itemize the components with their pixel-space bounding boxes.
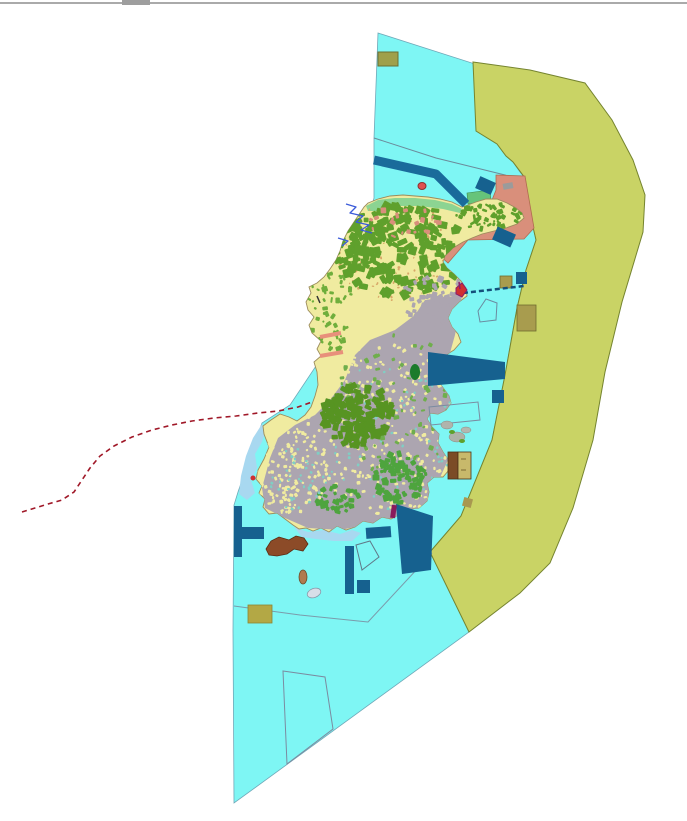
map-canvas[interactable] — [0, 0, 687, 821]
gray-islet-a — [441, 421, 453, 429]
navy-bar-coast-south — [366, 526, 392, 539]
navy-tbar-vertical-west — [234, 506, 242, 557]
top-rule-blob — [122, 0, 150, 5]
khaki-square-bottom — [248, 605, 272, 623]
khaki-square-east-small — [500, 276, 512, 288]
green-islet-b — [459, 439, 465, 443]
navy-tbar-horizontal-west — [242, 527, 264, 539]
gray-islet-c — [461, 427, 471, 433]
navy-square-east-upper — [516, 272, 527, 284]
khaki-rect-east-large — [517, 305, 536, 331]
green-dot-harbor — [410, 364, 420, 380]
red-dot-symbol-north — [418, 183, 426, 190]
navy-square-east-lower — [492, 390, 504, 403]
navy-bar-vertical-south — [345, 546, 354, 594]
port-symbol-mast — [459, 282, 460, 289]
green-islet-a — [449, 430, 455, 434]
navy-harbor-band-south — [396, 504, 433, 574]
brown-box-southeast — [448, 452, 458, 479]
khaki-box-southeast — [458, 452, 471, 479]
brown-islet-oval — [299, 570, 307, 584]
map-svg — [0, 0, 687, 821]
navy-square-south — [357, 580, 370, 593]
red-dot-west-coast — [251, 476, 256, 481]
khaki-square-top — [378, 52, 398, 66]
